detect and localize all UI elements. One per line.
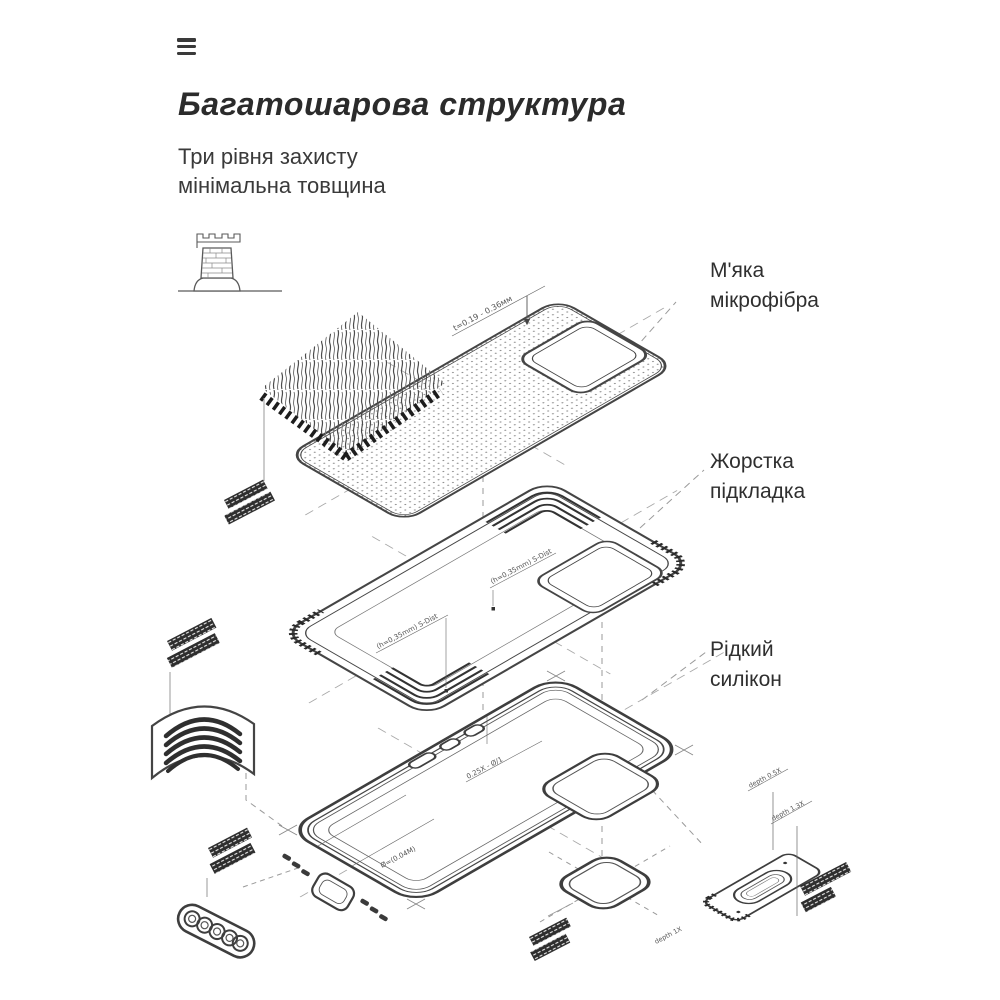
dim-text-depth-top: depth 0.5X <box>747 766 783 790</box>
tag-speaker <box>203 828 259 874</box>
tag-microfiber <box>218 479 275 524</box>
detail-port-plate: depth 0.5X depth 1.3X depth 1X <box>653 766 823 946</box>
detail-speaker-plug <box>173 878 259 962</box>
dim-text-depth-bottom: depth 1.3X <box>770 799 806 823</box>
case-usb-cutout <box>309 871 357 914</box>
detail-camera-ring <box>548 853 657 916</box>
dim-text-depth-left: depth 1X <box>653 925 683 946</box>
tag-bumper <box>160 618 223 668</box>
detail-corner-bumper <box>152 672 254 778</box>
exploded-case-diagram: t=0.19 - 0.36мм <box>0 0 1000 1000</box>
tag-camera-ring <box>524 918 578 961</box>
castle-tower-icon <box>178 234 282 291</box>
dim-text-microfiber: t=0.19 - 0.36мм <box>452 294 514 333</box>
